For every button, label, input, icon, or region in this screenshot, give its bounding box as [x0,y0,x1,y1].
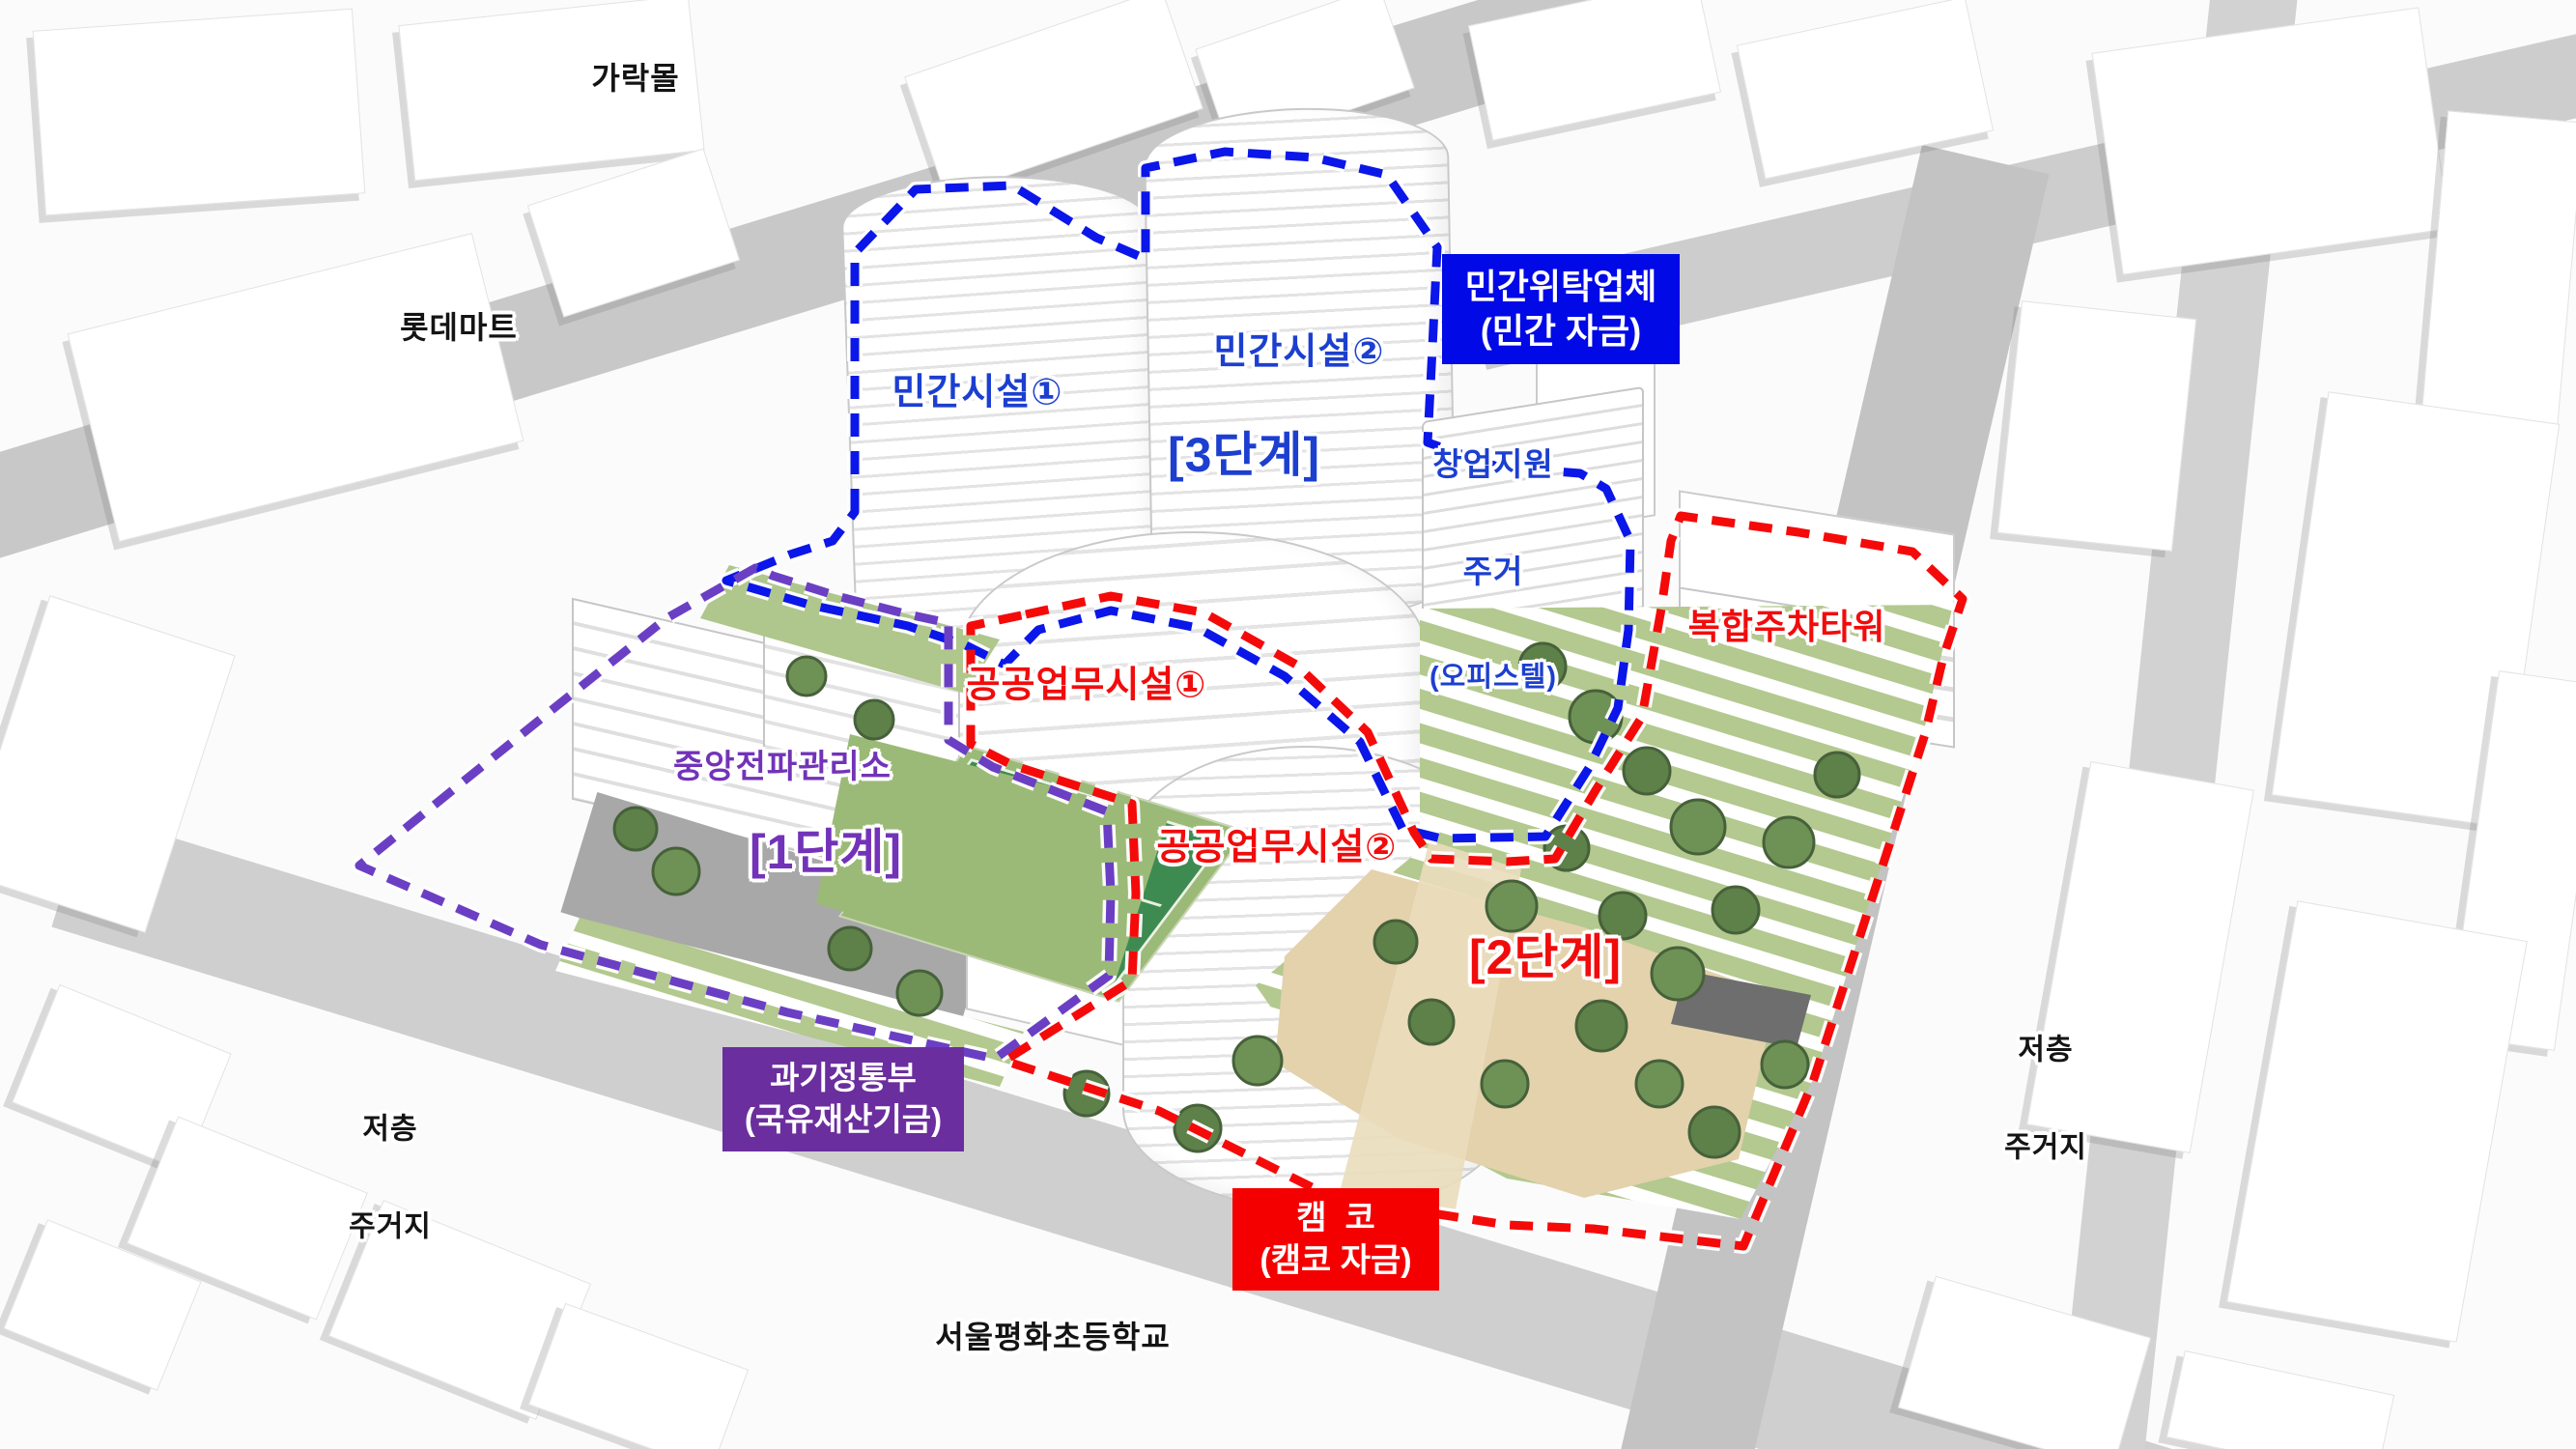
label-lotte-mart: 롯데마트 [400,311,518,346]
startup-line2: 주거 [1430,554,1557,590]
startup-line3: (오피스텔) [1430,662,1557,693]
low-rise-left-line2: 주거지 [349,1211,432,1244]
label-school: 서울평화초등학교 [935,1321,1171,1355]
label-radio-office: 중앙전파관리소 [673,749,892,785]
phase1-outline [359,568,1111,1059]
funding-box-gov: 과기정통부 (국유재산기금) [722,1047,964,1151]
funding-kamco-line2: (캠코 자금) [1232,1241,1439,1280]
funding-box-private: 민간위탁업체 (민간 자금) [1442,254,1680,364]
label-startup-housing: 창업지원 주거 (오피스텔) [1430,376,1557,764]
label-parking-tower: 복합주차타워 [1688,608,1886,646]
label-low-rise-right: 저층 주거지 [2004,970,2087,1230]
label-public-facility-1: 공공업무시설① [967,666,1207,707]
label-private-facility-1: 민간시설① [892,373,1062,414]
label-phase-2: [2단계] [1469,930,1622,984]
phase1-outline-halo [359,568,1111,1059]
label-public-facility-2: 공공업무시설② [1157,828,1398,869]
label-private-facility-2: 민간시설② [1213,332,1384,374]
low-rise-right-line1: 저층 [2004,1035,2087,1067]
funding-gov-line2: (국유재산기금) [722,1101,964,1139]
site-plan-diagram: 가락몰 롯데마트 서울평화초등학교 저층 주거지 저층 주거지 민간시설① 민간… [0,0,2576,1449]
startup-line1: 창업지원 [1430,447,1557,483]
label-phase-1: [1단계] [750,825,902,879]
funding-box-kamco: 캠 코 (캠코 자금) [1232,1188,1439,1291]
funding-gov-line1: 과기정통부 [722,1060,964,1097]
funding-private-line1: 민간위탁업체 [1442,267,1680,307]
low-rise-right-line2: 주거지 [2004,1132,2087,1165]
label-garak-mall: 가락몰 [591,62,679,97]
low-rise-left-line1: 저층 [349,1114,432,1147]
funding-private-line2: (민간 자금) [1442,311,1680,352]
label-low-rise-left: 저층 주거지 [349,1049,432,1309]
funding-kamco-line1: 캠 코 [1232,1199,1439,1237]
label-phase-3: [3단계] [1168,428,1320,482]
